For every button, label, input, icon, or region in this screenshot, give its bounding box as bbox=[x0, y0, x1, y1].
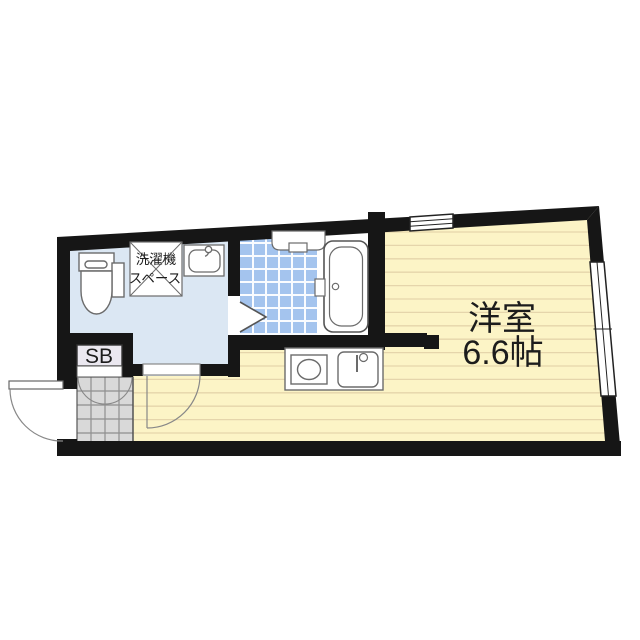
wall-washroom-genkan bbox=[57, 333, 133, 345]
outer-wall-bottom bbox=[57, 441, 621, 456]
wall-door-stub-right bbox=[200, 364, 240, 376]
tub-step bbox=[315, 279, 325, 296]
floor-plan-page: 洗濯機 スペース SB 洋室 6.6帖 bbox=[0, 0, 640, 640]
wall-openings bbox=[228, 296, 240, 335]
wall-kitchen-partition bbox=[385, 333, 427, 347]
top-window bbox=[410, 214, 453, 231]
shoe-box-label: SB bbox=[85, 345, 113, 368]
washer-space-label-line2: スペース bbox=[129, 271, 181, 286]
wall-kitchen-partition-cap bbox=[424, 335, 439, 349]
bath-shelf-box bbox=[289, 243, 307, 252]
wall-door-stub-left bbox=[133, 364, 143, 376]
wash-basin bbox=[184, 245, 224, 276]
toilet-bowl bbox=[81, 271, 112, 314]
entrance-door-arc bbox=[10, 389, 63, 441]
washing-machine-space bbox=[130, 242, 182, 296]
toilet-handle bbox=[85, 261, 107, 268]
main-room-label: 洋室 bbox=[468, 300, 536, 338]
basin-faucet bbox=[205, 246, 211, 252]
entrance-door-leaf bbox=[9, 381, 63, 389]
wall-washroom-bath-upper bbox=[228, 239, 240, 297]
outer-wall-left-upper bbox=[57, 237, 70, 335]
kitchen-counter bbox=[285, 348, 383, 390]
toilet-side-panel bbox=[112, 263, 124, 297]
basin-bowl bbox=[189, 250, 220, 272]
washroom-door-leaf bbox=[143, 364, 200, 375]
washer-space-label-line1: 洗濯機 bbox=[136, 252, 177, 267]
main-room-size: 6.6帖 bbox=[462, 334, 543, 372]
wall-bath-mainroom bbox=[368, 212, 385, 350]
bath-door-opening bbox=[228, 296, 240, 335]
floor-plan-drawing: 洗濯機 スペース SB 洋室 6.6帖 bbox=[0, 0, 640, 640]
bath-shelf bbox=[272, 231, 325, 252]
entrance-door bbox=[9, 381, 63, 441]
wall-sb-side bbox=[122, 345, 133, 377]
